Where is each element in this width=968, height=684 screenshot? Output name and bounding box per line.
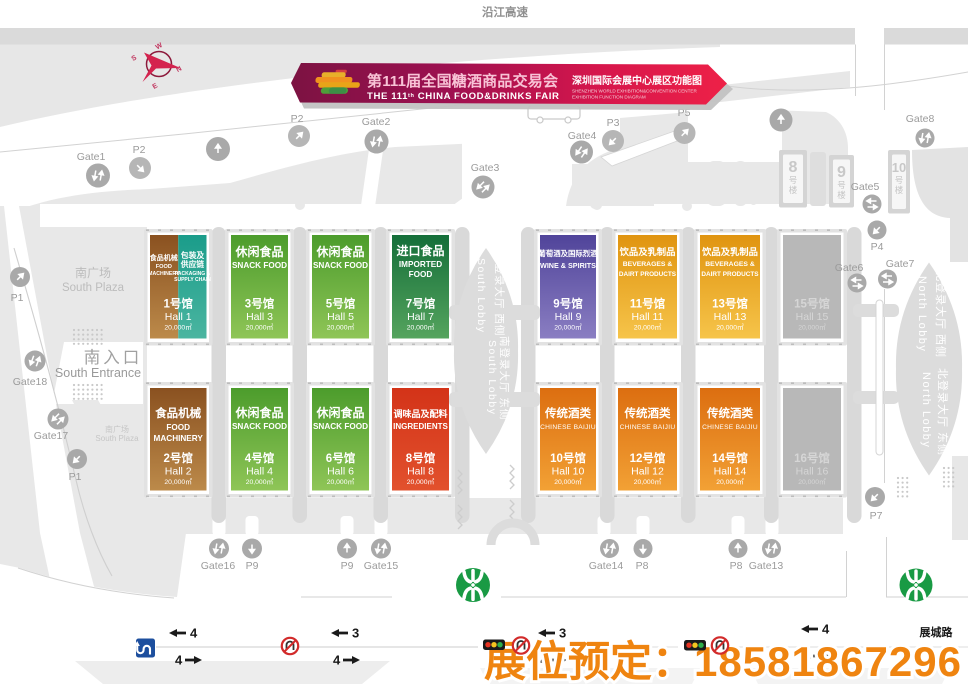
svg-text:South Plaza: South Plaza [95,434,139,443]
svg-text:SUPPLY CHAIN: SUPPLY CHAIN [174,277,211,283]
svg-text:Gate4: Gate4 [568,130,597,142]
svg-text:7号馆: 7号馆 [406,297,436,311]
svg-text:3: 3 [352,626,359,641]
svg-text:SNACK FOOD: SNACK FOOD [232,422,287,431]
svg-text:Gate13: Gate13 [749,560,784,572]
svg-text:Gate16: Gate16 [201,560,236,572]
svg-text:调味品及配料: 调味品及配料 [393,408,447,419]
svg-text:Gate6: Gate6 [835,262,864,274]
svg-text:深圳国际会展中心展区功能图: 深圳国际会展中心展区功能图 [572,74,702,87]
svg-text:CHINESE BAIJIU: CHINESE BAIJIU [540,424,596,431]
svg-text:Hall 14: Hall 14 [714,466,747,478]
svg-text:P2: P2 [291,113,304,125]
svg-text:第111届全国糖酒商品交易会: 第111届全国糖酒商品交易会 [367,72,558,90]
svg-text:SNACK FOOD: SNACK FOOD [313,422,368,431]
svg-text:Gate15: Gate15 [364,560,399,572]
svg-text:Hall 3: Hall 3 [246,311,273,323]
svg-text:12号馆: 12号馆 [630,451,666,465]
svg-text:P8: P8 [636,560,649,572]
svg-text:Hall 4: Hall 4 [246,466,273,478]
svg-text:Hall 1: Hall 1 [165,311,192,323]
svg-text:20,000㎡: 20,000㎡ [554,323,582,332]
svg-text:9号馆: 9号馆 [553,297,583,311]
svg-text:14号馆: 14号馆 [712,451,748,465]
svg-text:食品机械: 食品机械 [149,253,178,262]
svg-text:Gate17: Gate17 [34,430,69,442]
svg-text:South Entrance: South Entrance [55,366,141,380]
svg-text:P1: P1 [11,292,24,304]
svg-text:P7: P7 [870,510,883,522]
svg-text:CHINESE BAIJIU: CHINESE BAIJIU [702,424,758,431]
svg-text:休闲食品: 休闲食品 [315,405,364,420]
svg-text:Hall 12: Hall 12 [631,466,664,478]
svg-text:WINE & SPIRITS: WINE & SPIRITS [540,261,596,270]
svg-text:FOOD: FOOD [166,423,190,432]
svg-text:1号馆: 1号馆 [163,297,193,311]
svg-text:DAIRT PRODUCTS: DAIRT PRODUCTS [701,271,759,278]
svg-text:4号馆: 4号馆 [245,451,275,465]
svg-text:20,000㎡: 20,000㎡ [246,477,274,486]
svg-text:20,000㎡: 20,000㎡ [327,323,355,332]
svg-text:南广场: 南广场 [75,265,111,280]
svg-text:P8: P8 [730,560,743,572]
svg-text:楼: 楼 [895,185,904,195]
svg-text:展城路: 展城路 [919,625,954,639]
svg-text:休闲食品: 休闲食品 [234,244,283,259]
svg-text:Hall 11: Hall 11 [632,311,664,323]
svg-text:休闲食品: 休闲食品 [234,405,283,420]
svg-text:North Lobby: North Lobby [920,372,932,448]
svg-text:20,000㎡: 20,000㎡ [164,323,192,332]
svg-text:CHINESE BAIJIU: CHINESE BAIJIU [620,424,676,431]
svg-text:休闲食品: 休闲食品 [315,244,364,259]
svg-text:饮品及乳制品: 饮品及乳制品 [701,246,758,257]
svg-text:6号馆: 6号馆 [326,451,356,465]
svg-text:号: 号 [837,180,846,190]
svg-text:SHENZHEN WORLD EXHIBITION&CONV: SHENZHEN WORLD EXHIBITION&CONVENTION CEN… [572,89,697,94]
svg-text:进口食品: 进口食品 [396,243,444,258]
svg-text:Gate18: Gate18 [13,376,48,388]
svg-text:P3: P3 [607,117,620,129]
svg-text:Hall 10: Hall 10 [552,466,585,478]
svg-text:IMPORTED: IMPORTED [399,260,442,269]
svg-text:楼: 楼 [837,190,846,200]
svg-text:20,000㎡: 20,000㎡ [164,477,192,486]
svg-text:8号馆: 8号馆 [406,451,436,465]
svg-text:4: 4 [175,653,183,668]
svg-text:Gate5: Gate5 [851,181,880,193]
svg-text:20,000㎡: 20,000㎡ [407,477,435,486]
svg-text:20,000㎡: 20,000㎡ [716,477,744,486]
svg-text:南登录大厅 西侧: 南登录大厅 西侧 [493,252,506,336]
svg-text:沿江高速: 沿江高速 [482,5,528,19]
svg-text:2号馆: 2号馆 [163,451,193,465]
svg-text:16号馆: 16号馆 [794,451,830,465]
svg-text:BEVERAGES &: BEVERAGES & [705,261,755,268]
svg-text:INGREDIENTS: INGREDIENTS [393,422,448,431]
svg-text:DAIRT PRODUCTS: DAIRT PRODUCTS [619,271,677,278]
svg-text:Hall 2: Hall 2 [165,466,192,478]
svg-text:Gate1: Gate1 [77,151,106,163]
svg-text:号: 号 [895,175,904,185]
svg-text:4: 4 [333,653,341,668]
svg-text:传统酒类: 传统酒类 [544,406,591,420]
svg-text:4: 4 [190,626,198,641]
svg-text:SNACK FOOD: SNACK FOOD [232,261,287,270]
svg-text:P2: P2 [133,144,146,156]
svg-text:食品机械: 食品机械 [155,406,201,420]
svg-text:20,000㎡: 20,000㎡ [634,323,662,332]
svg-text:FOOD: FOOD [409,270,433,279]
svg-text:Hall 15: Hall 15 [796,311,829,323]
svg-text:Gate2: Gate2 [362,116,391,128]
svg-text:20,000㎡: 20,000㎡ [407,323,435,332]
svg-text:Hall 13: Hall 13 [714,311,747,323]
svg-text:20,000㎡: 20,000㎡ [327,477,355,486]
svg-text:饮品及乳制品: 饮品及乳制品 [619,246,676,257]
svg-text:20,000㎡: 20,000㎡ [634,477,662,486]
svg-text:传统酒类: 传统酒类 [624,406,671,420]
svg-text:Gate7: Gate7 [886,258,915,270]
svg-text:20,000㎡: 20,000㎡ [798,323,826,332]
svg-text:20,000㎡: 20,000㎡ [798,477,826,486]
svg-text:South Lobby: South Lobby [486,340,498,415]
svg-text:10: 10 [892,160,906,175]
svg-text:P4: P4 [871,241,884,253]
svg-text:3号馆: 3号馆 [245,297,275,311]
svg-text:包装及: 包装及 [181,250,205,260]
svg-text:Hall 6: Hall 6 [327,466,354,478]
svg-text:南登录大厅 东侧: 南登录大厅 东侧 [498,336,511,420]
svg-text:号: 号 [789,175,798,185]
svg-text:4: 4 [822,622,830,637]
svg-text:13号馆: 13号馆 [712,297,748,311]
svg-text:11号馆: 11号馆 [630,297,666,311]
svg-text:P9: P9 [246,560,259,572]
svg-text:Gate14: Gate14 [589,560,624,572]
svg-text:Hall 16: Hall 16 [796,466,829,478]
svg-text:供应链: 供应链 [180,259,205,269]
svg-text:Gate3: Gate3 [471,162,500,174]
svg-text:20,000㎡: 20,000㎡ [716,323,744,332]
svg-text:20,000㎡: 20,000㎡ [246,323,274,332]
svg-text:葡萄酒及国际烈酒: 葡萄酒及国际烈酒 [537,249,598,258]
svg-text:Hall 9: Hall 9 [555,311,582,323]
svg-text:15号馆: 15号馆 [794,297,830,311]
svg-text:South Plaza: South Plaza [62,282,125,294]
svg-text:THE 111th CHINA FOOD&DRINKS FA: THE 111th CHINA FOOD&DRINKS FAIR [367,91,560,102]
svg-text:Hall 8: Hall 8 [407,466,434,478]
svg-text:SNACK FOOD: SNACK FOOD [313,261,368,270]
svg-text:9: 9 [837,164,846,181]
svg-text:8: 8 [789,159,798,176]
svg-text:P9: P9 [341,560,354,572]
svg-text:P1: P1 [69,471,82,483]
svg-text:10号馆: 10号馆 [550,451,586,465]
svg-text:传统酒类: 传统酒类 [706,406,753,420]
svg-text:南入口: 南入口 [84,348,143,367]
svg-text:5号馆: 5号馆 [326,297,356,311]
svg-text:Hall 7: Hall 7 [407,311,434,323]
svg-text:楼: 楼 [789,185,798,195]
svg-text:南广场: 南广场 [105,424,129,434]
svg-text:北登录大厅 东侧: 北登录大厅 东侧 [936,368,950,456]
svg-text:EXHIBITION FUNCTION DIAGRAM: EXHIBITION FUNCTION DIAGRAM [572,95,646,100]
svg-text:MACHINERY: MACHINERY [154,434,204,443]
svg-text:Gate8: Gate8 [906,113,935,125]
svg-text:South Lobby: South Lobby [475,258,487,333]
svg-text:北登录大厅 西侧: 北登录大厅 西侧 [934,270,948,358]
svg-text:Hall 5: Hall 5 [327,311,354,323]
svg-text:FOOD: FOOD [156,264,172,270]
svg-text:20,000㎡: 20,000㎡ [554,477,582,486]
svg-text:BEVERAGES &: BEVERAGES & [623,261,673,268]
svg-text:North Lobby: North Lobby [916,276,928,352]
